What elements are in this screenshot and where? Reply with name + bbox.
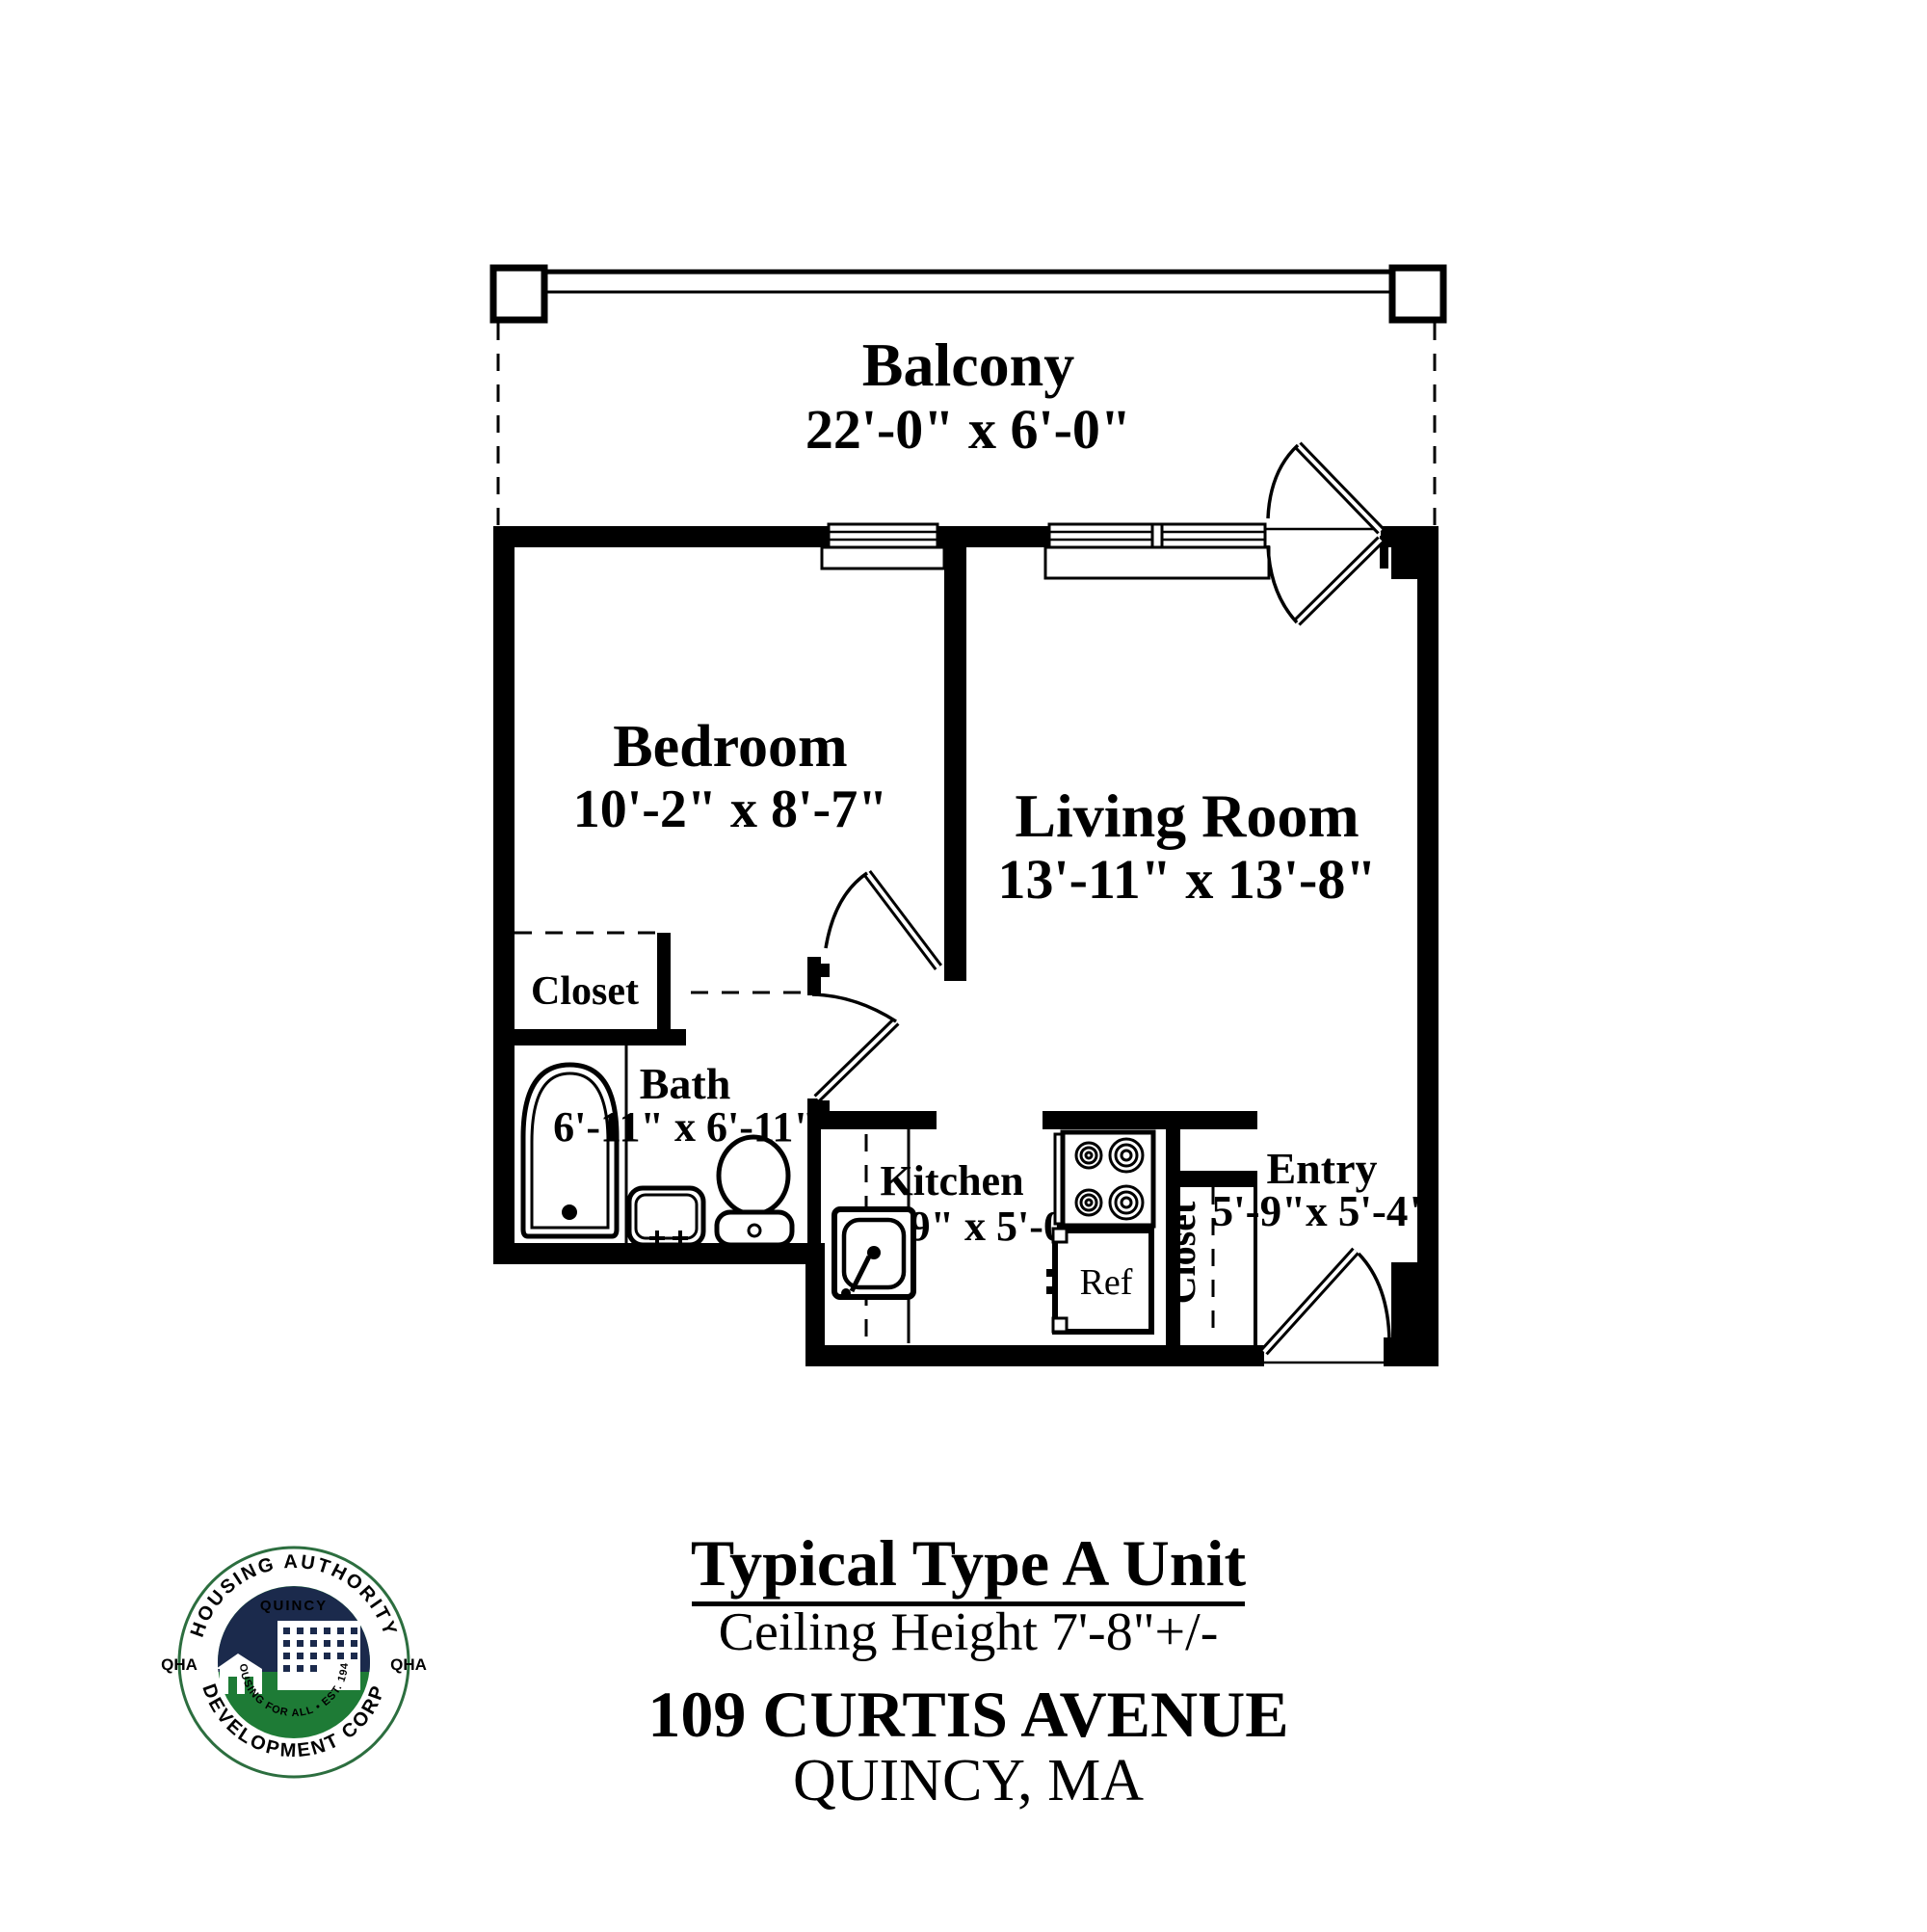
logo-city-text: QUINCY: [260, 1598, 328, 1614]
bathroom-sink-icon: [629, 1188, 703, 1246]
logo-qha-left: QHA: [161, 1655, 198, 1674]
refrigerator-icon: Ref: [1046, 1229, 1151, 1332]
entry-label: Entry: [1267, 1144, 1378, 1193]
bedroom-door-icon: [826, 873, 938, 967]
living-room-window-mullion: [1152, 524, 1162, 547]
wall-kitchen-counter-north: [821, 1111, 937, 1129]
wall-bottom: [805, 1345, 1264, 1366]
title-block: Typical Type A Unit Ceiling Height 7'-8"…: [647, 1526, 1288, 1813]
living-room-window-sill: [1045, 547, 1269, 578]
wall-top-middle: [937, 526, 1049, 547]
balcony-label: Balcony: [862, 331, 1074, 399]
living-room-label: Living Room: [1015, 781, 1359, 850]
floor-plan-page: Balcony 22'-0" x 6'-0": [0, 0, 1927, 1927]
wall-bedroom-closet-right: [657, 933, 671, 1033]
bedroom-closet-label: Closet: [531, 969, 639, 1014]
bedroom-dims: 10'-2" x 8'-7": [573, 780, 888, 839]
wall-left: [493, 526, 515, 1264]
bath-dims: 6'-11" x 6'-11": [553, 1103, 817, 1151]
entry-dims: 5'-9"x 5'-4": [1212, 1187, 1433, 1235]
balcony-post-left: [493, 268, 544, 320]
wall-top-left: [493, 526, 829, 547]
refrigerator-label: Ref: [1080, 1262, 1133, 1303]
bedroom-label: Bedroom: [613, 714, 847, 780]
housing-authority-logo: HOUSING AUTHORITY DEVELOPMENT CORP HOUSI…: [0, 0, 427, 1777]
city-line: QUINCY, MA: [793, 1748, 1144, 1813]
balcony-dims: 22'-0" x 6'-0": [805, 398, 1131, 461]
kitchen-sink-icon: [834, 1209, 913, 1298]
logo-motto-text: HOUSING FOR ALL • EST. 1945: [0, 0, 351, 1719]
wall-right-notch: [1391, 1262, 1417, 1345]
svg-text:HOUSING FOR ALL • EST. 1945: HOUSING FOR ALL • EST. 1945: [0, 0, 351, 1719]
wall-counter-over-stove: [1043, 1111, 1257, 1129]
wall-hall-stub: [807, 957, 821, 995]
logo-qha-right: QHA: [390, 1655, 427, 1674]
address-line: 109 CURTIS AVENUE: [647, 1678, 1288, 1751]
bathtub-icon: [523, 1065, 617, 1236]
wall-hall-stub-nub: [821, 964, 830, 977]
wall-bedroom-living-partition: [944, 547, 966, 981]
bath-label: Bath: [640, 1059, 731, 1108]
entry-door-icon: [1264, 1251, 1389, 1352]
wall-bottom-right: [1391, 1345, 1439, 1366]
balcony: Balcony 22'-0" x 6'-0": [493, 268, 1443, 526]
floor-plan-canvas: Balcony 22'-0" x 6'-0": [0, 0, 1927, 1927]
ceiling-height-note: Ceiling Height 7'-8"+/-: [719, 1602, 1219, 1662]
kitchen-label: Kitchen: [880, 1157, 1023, 1204]
living-room-dims: 13'-11" x 13'-8": [997, 848, 1376, 911]
entry-door-jamb: [1384, 1337, 1391, 1366]
bedroom-window-sill: [822, 547, 944, 569]
bedroom-window: [829, 524, 937, 547]
stove-icon: [1055, 1132, 1153, 1226]
wall-entry-closet-shelf: [1166, 1171, 1257, 1187]
bath-door-icon: [812, 994, 896, 1098]
wall-right: [1417, 526, 1439, 1366]
wall-bedroom-closet-bottom: [493, 1029, 686, 1045]
entry-closet-label: Closet: [1160, 1201, 1203, 1304]
wall-ne-corner-column: [1391, 547, 1417, 579]
plan-title: Typical Type A Unit: [691, 1526, 1247, 1600]
balcony-post-right: [1392, 268, 1443, 320]
balcony-door-icon: [1268, 445, 1381, 622]
toilet-icon: [717, 1137, 792, 1245]
